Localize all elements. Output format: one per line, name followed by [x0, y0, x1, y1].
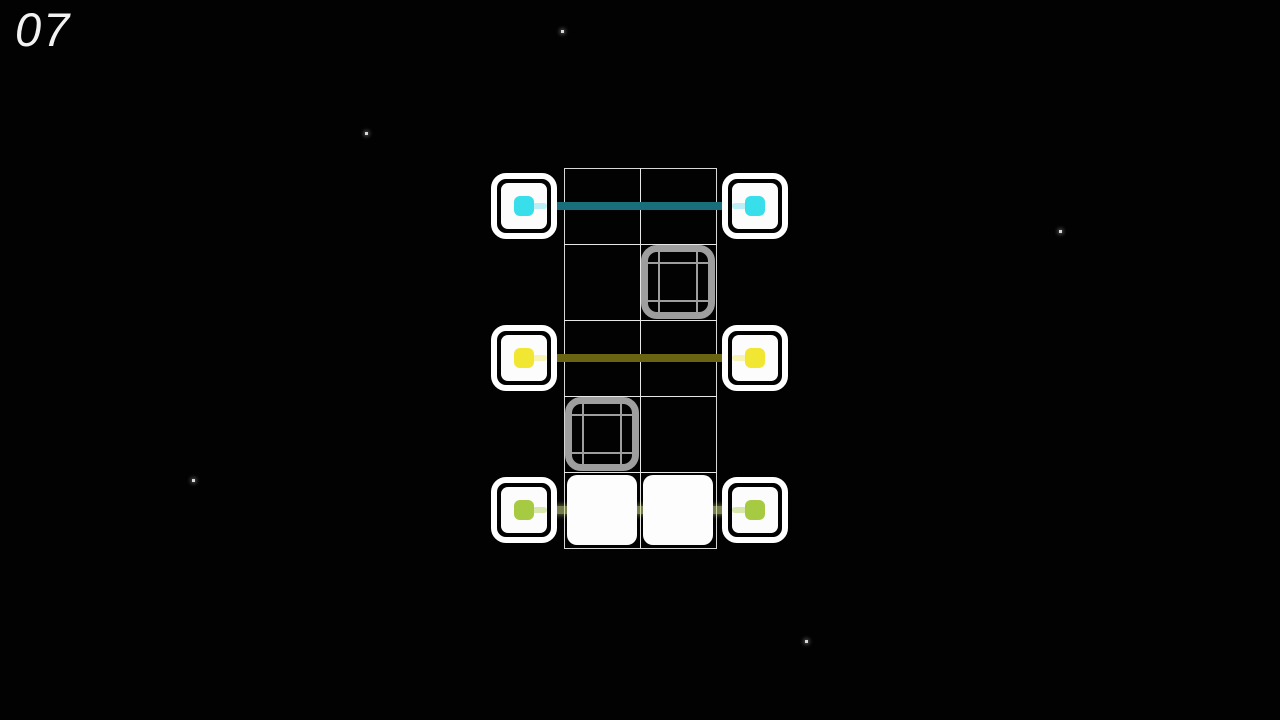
level-number: 07	[15, 4, 71, 56]
cyan-endpoint-left[interactable]	[491, 173, 557, 239]
green-endpoint-right[interactable]	[722, 477, 788, 543]
cyan-endpoint-right[interactable]	[722, 173, 788, 239]
obstacle-hash-line	[582, 404, 584, 464]
background-star-5	[805, 640, 808, 643]
green-endpoint-left[interactable]	[491, 477, 557, 543]
grid-cell-r3c1[interactable]	[640, 396, 717, 473]
cyan-endpoint-marker	[745, 196, 765, 216]
yellow-endpoint-marker	[514, 348, 534, 368]
obstacle-hash-line	[648, 300, 708, 302]
obstacle-hash-line	[572, 452, 632, 454]
green-endpoint-marker	[745, 500, 765, 520]
obstacle-hash-line	[696, 252, 698, 312]
yellow-connection-line	[524, 354, 755, 362]
obstacle-hash-line	[572, 414, 632, 416]
yellow-endpoint-right[interactable]	[722, 325, 788, 391]
yellow-endpoint-left[interactable]	[491, 325, 557, 391]
green-connection-line	[524, 506, 755, 514]
cyan-connection-line	[524, 202, 755, 210]
yellow-endpoint-marker	[745, 348, 765, 368]
lit-cell-r4c0[interactable]	[567, 475, 637, 545]
obstacle-hash-line	[658, 252, 660, 312]
grid-cell-r1c0[interactable]	[564, 244, 641, 321]
obstacle-hash-line	[648, 262, 708, 264]
game-screen: 07	[0, 0, 1280, 720]
obstacle-block-r1c1	[641, 245, 715, 319]
obstacle-block-r3c0	[565, 397, 639, 471]
background-star-3	[1059, 230, 1062, 233]
green-endpoint-marker	[514, 500, 534, 520]
background-star-4	[192, 479, 195, 482]
lit-cell-r4c1[interactable]	[643, 475, 713, 545]
obstacle-hash-line	[620, 404, 622, 464]
background-star-2	[365, 132, 368, 135]
cyan-endpoint-marker	[514, 196, 534, 216]
background-star-1	[561, 30, 564, 33]
